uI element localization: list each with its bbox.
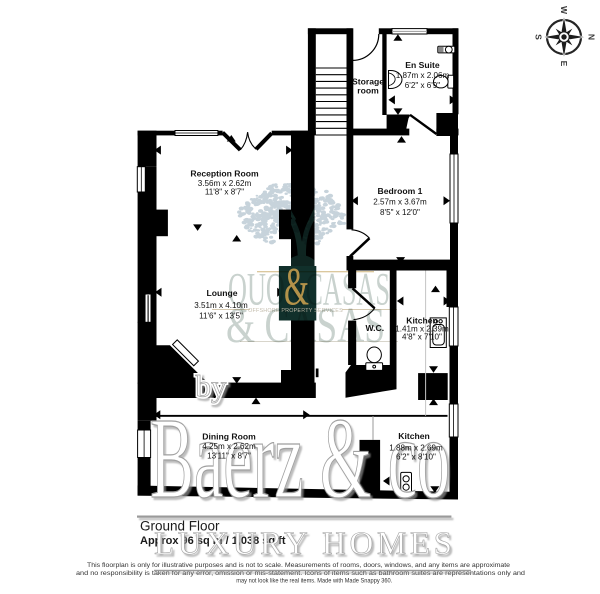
svg-text:4'8" x 7'10": 4'8" x 7'10"	[402, 332, 442, 341]
svg-text:E: E	[559, 61, 569, 67]
svg-text:En Suite: En Suite	[405, 60, 440, 70]
svg-text:6'2" x 8'10": 6'2" x 8'10"	[396, 452, 436, 461]
svg-text:13'11" x 8'7": 13'11" x 8'7"	[207, 451, 251, 460]
svg-text:Reception Room: Reception Room	[190, 169, 259, 179]
svg-text:Bedroom 1: Bedroom 1	[378, 186, 423, 196]
svg-text:W: W	[559, 6, 569, 15]
svg-text:8'5" x 12'0": 8'5" x 12'0"	[380, 208, 420, 217]
svg-text:Kitchen: Kitchen	[398, 431, 430, 441]
svg-text:may not look like the real ite: may not look like the real items. Made w…	[236, 578, 392, 585]
svg-text:11'6" x 13'5": 11'6" x 13'5"	[199, 312, 243, 321]
svg-text:N: N	[586, 34, 596, 40]
svg-text:4.25m x 2.62m: 4.25m x 2.62m	[202, 442, 256, 451]
svg-text:6'2" x 6'9": 6'2" x 6'9"	[405, 81, 441, 90]
svg-text:11'8" x 8'7": 11'8" x 8'7"	[205, 188, 244, 197]
svg-text:This floorplan is only for ill: This floorplan is only for illustrative …	[87, 562, 511, 569]
svg-text:S: S	[533, 34, 543, 40]
svg-text:W.C.: W.C.	[365, 323, 384, 333]
svg-text:room: room	[357, 86, 379, 96]
svg-text:1.88m x 2.69m: 1.88m x 2.69m	[389, 444, 443, 453]
svg-text:1.87m x 2.06m: 1.87m x 2.06m	[396, 71, 450, 80]
svg-text:3.51m x 4.10m: 3.51m x 4.10m	[194, 301, 248, 310]
svg-text:& CASAS: & CASAS	[226, 297, 385, 353]
svg-text:2.57m x 3.67m: 2.57m x 3.67m	[373, 198, 427, 207]
svg-text:Lounge: Lounge	[206, 288, 237, 298]
svg-text:Dining Room: Dining Room	[202, 432, 256, 442]
